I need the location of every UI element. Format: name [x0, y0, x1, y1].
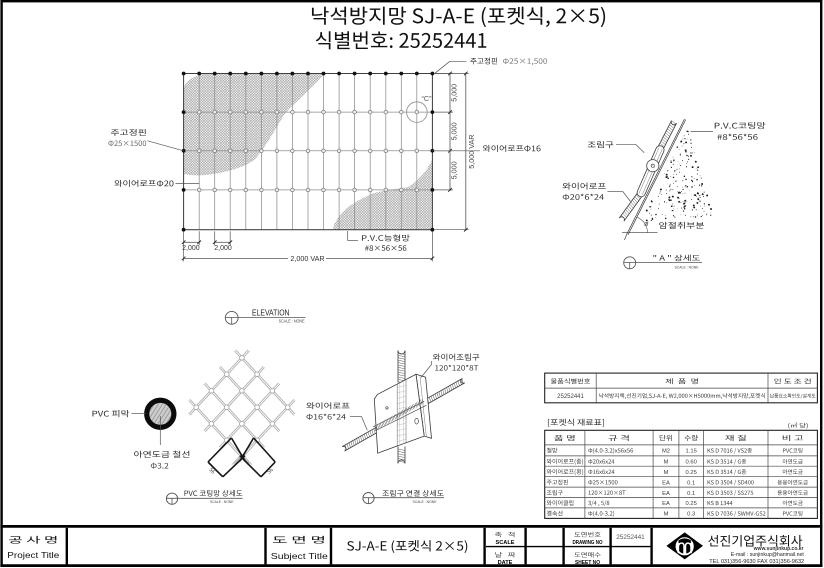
svg-text:SHEET NO: SHEET NO — [575, 560, 600, 566]
svg-text:ELEVATION: ELEVATION — [252, 309, 290, 318]
svg-text:5,000: 5,000 — [449, 161, 458, 179]
svg-text:Project Title: Project Title — [7, 551, 60, 560]
svg-text:SCALE : NONE: SCALE : NONE — [279, 319, 305, 324]
svg-text:0.1: 0.1 — [687, 491, 695, 497]
svg-text:M: M — [664, 512, 669, 518]
svg-text:2,000: 2,000 — [214, 245, 232, 252]
svg-text:0.60: 0.60 — [686, 460, 697, 466]
svg-text:0.1: 0.1 — [687, 480, 695, 486]
svg-text:M: M — [664, 460, 669, 466]
svg-text:M2: M2 — [662, 449, 670, 455]
svg-text:SCALE: SCALE — [496, 540, 515, 546]
svg-text:2,000 VAR: 2,000 VAR — [290, 254, 324, 263]
svg-text:“C”: “C” — [422, 94, 433, 103]
svg-text:SCALE : NONE: SCALE : NONE — [413, 499, 437, 504]
svg-text:0.3: 0.3 — [687, 512, 695, 518]
svg-text:Subject Title: Subject Title — [271, 552, 329, 561]
svg-text:EA: EA — [662, 501, 670, 507]
svg-text:SCALE : NONE: SCALE : NONE — [210, 499, 234, 504]
svg-text:DRAWING NO: DRAWING NO — [573, 540, 603, 546]
svg-text:5,000: 5,000 — [449, 84, 458, 102]
svg-text:SCALE : NONE: SCALE : NONE — [675, 264, 699, 269]
svg-text:1.15: 1.15 — [686, 449, 697, 455]
svg-text:0.25: 0.25 — [686, 470, 697, 476]
svg-text:25252441: 25252441 — [616, 534, 645, 541]
svg-text:25252441: 25252441 — [557, 394, 584, 400]
svg-text:E-mail : sunjinkup@hanmail.net: E-mail : sunjinkup@hanmail.net — [731, 552, 805, 558]
svg-text:TEL 031)356-9630 FAX 031)356-: TEL 031)356-9630 FAX 031)356-9632 — [709, 559, 804, 565]
svg-text:5,000: 5,000 — [449, 122, 458, 140]
svg-text:0.25: 0.25 — [686, 501, 697, 507]
svg-text:EA: EA — [662, 491, 670, 497]
svg-text:DATE: DATE — [498, 560, 513, 566]
svg-text:EA: EA — [662, 480, 670, 486]
svg-text:2,000: 2,000 — [182, 245, 200, 252]
svg-text:5,000 VAR: 5,000 VAR — [467, 134, 476, 168]
svg-text:M: M — [664, 470, 669, 476]
